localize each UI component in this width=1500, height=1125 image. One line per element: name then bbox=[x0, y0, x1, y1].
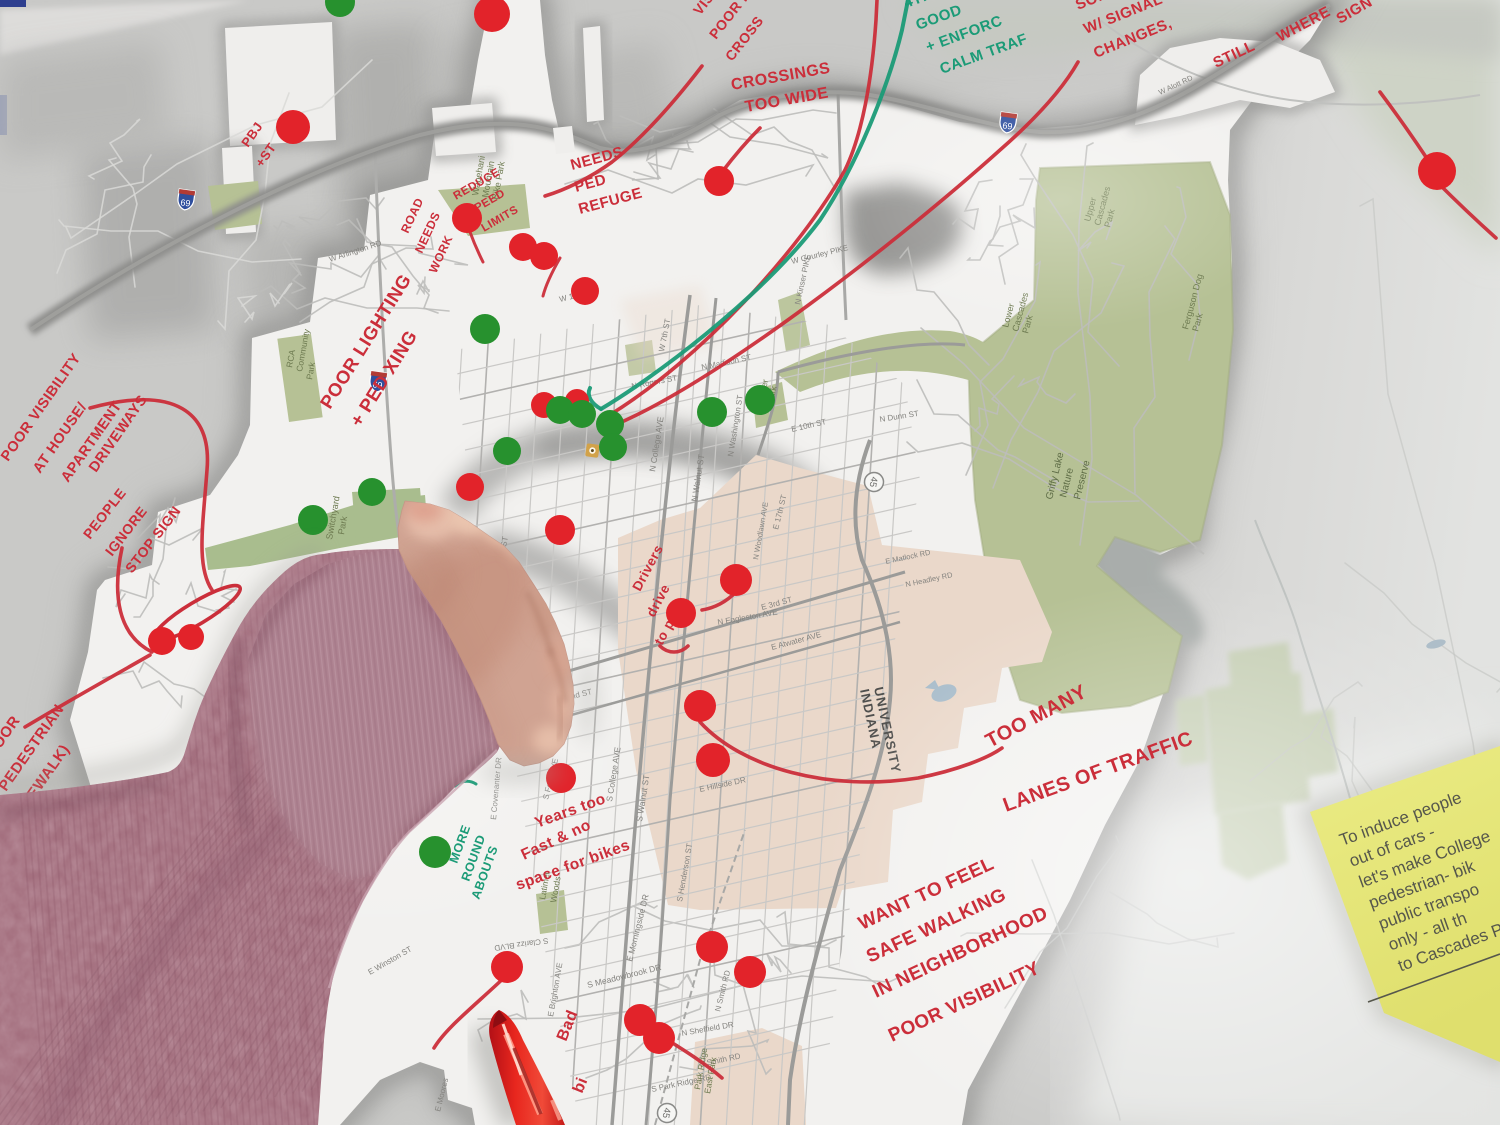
svg-text:45: 45 bbox=[660, 1107, 673, 1119]
svg-text:45: 45 bbox=[867, 476, 880, 488]
svg-text:69: 69 bbox=[180, 197, 191, 208]
